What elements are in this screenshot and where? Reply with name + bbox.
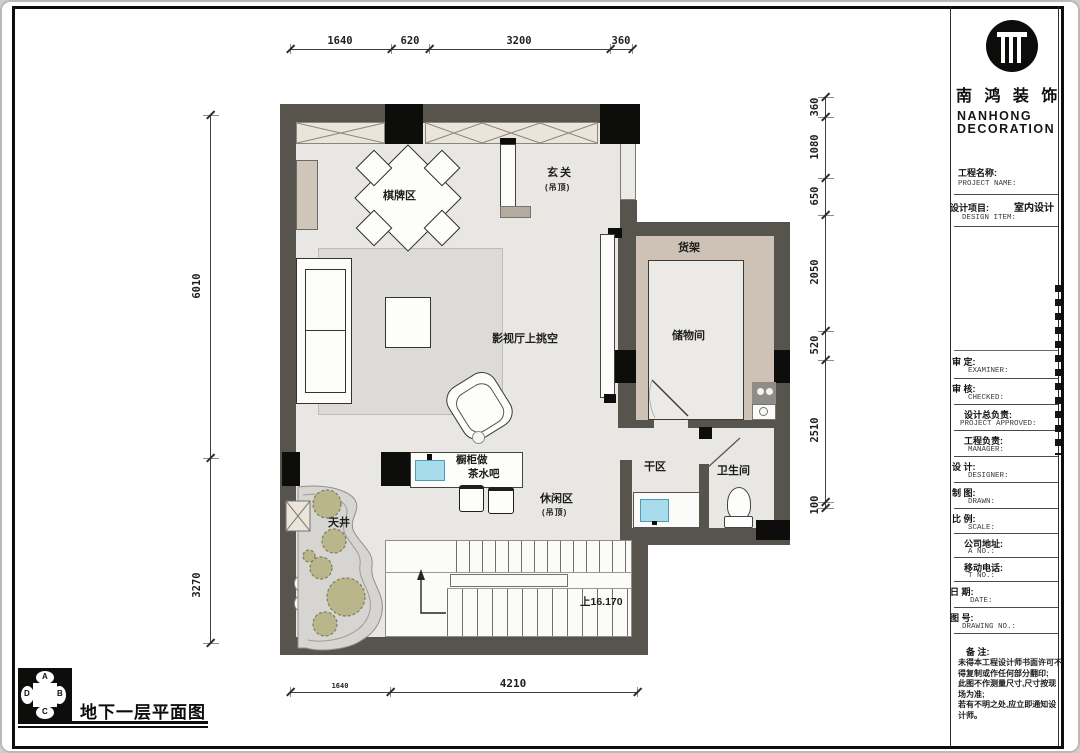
room-label-entry-sub: (吊顶) [545,184,570,192]
room-label-bar1: 橱柜做 [456,455,488,466]
column [385,104,423,144]
entry-screen [500,144,516,208]
dry-area-left-stub [620,460,632,530]
dim-right-1: 360 [809,87,821,127]
room-label-bar2: 茶水吧 [468,469,500,480]
dim-line-right [825,97,826,509]
coffee-table [385,297,431,348]
dim-top-4: 360 [601,35,641,47]
plan-title: 地下一层平面图 [80,698,206,723]
room-label-lightwell: 天井 [328,518,350,530]
brand-name-cn: 南 鸿 装 饰 [956,82,1061,106]
tb-row-drawingno-en: DRAWING NO.: [962,623,1016,631]
stepping-stone [294,594,313,613]
tb-row-date-en: DATE: [970,597,993,605]
wall-pier-left [282,452,300,486]
dim-left-2: 3270 [191,565,203,605]
toilet-tank [724,516,753,528]
column [381,452,411,486]
column [756,520,790,540]
dim-line-top [290,49,632,50]
hatch-cabinet [296,122,385,144]
clipped-vertical-text-marks [1055,285,1061,455]
compass-c: C [42,707,48,716]
dim-right-7: 100 [809,485,821,525]
stair-east-wall [630,543,648,643]
faucet-icon [427,454,432,460]
tb-item-value: 室内设计 [1014,199,1054,214]
dim-top-1: 1640 [316,35,364,47]
dim-bottom-2: 4210 [483,677,543,690]
stair-rail [450,574,568,587]
tb-item-en: DESIGN ITEM: [962,214,1016,222]
brand-logo-icon [986,20,1038,72]
tb-remark-cn: 备 注: [966,645,990,658]
dim-bottom-1: 1640 [320,682,360,690]
title-underline2 [18,726,208,728]
tb-row-phone-en: T NO.: [968,572,995,580]
stepping-stone [294,574,313,593]
stair-treads-upper [456,541,632,572]
tb-project-cn: 工程名称: [958,166,997,179]
storage-top-wall [628,222,790,236]
tb-row-drawn-en: DRAWN: [968,498,995,506]
side-cabinet [296,160,318,230]
bar-stool [488,487,514,514]
tea-bar-sink [415,460,445,481]
compass-a: A [42,672,48,681]
entry-screen-return [500,206,531,218]
room-label-shelf: 货架 [678,243,700,255]
compass-d: D [24,689,30,698]
entry-east-window [620,142,636,200]
vanity-sink [640,499,669,522]
bar-stool [459,485,484,512]
orientation-key: A B C D [18,668,72,722]
column [600,104,640,144]
tb-project-en: PROJECT NAME: [958,180,1017,188]
dim-line-left [210,115,211,643]
dim-left-1: 6010 [191,266,203,306]
tb-row-approved-en: PROJECT APPROVED: [960,420,1037,428]
drawing-sheet: 棋牌区 玄关 (吊顶) 货架 储物间 影视厅上挑空 干区 卫生间 休闲区 (吊顶… [0,0,1080,753]
tb-row-checked-en: CHECKED: [968,394,1004,402]
room-label-storage: 储物间 [672,331,705,343]
storage-fixture-dot [759,407,768,416]
stair-mid-line [385,572,632,573]
tb-row-designer-en: DESIGNER: [968,472,1009,480]
tb-row-manager-en: MANAGER: [968,446,1004,454]
tb-item-cn: 设计项目: [950,201,989,214]
faucet-icon [652,521,657,525]
dim-right-6: 2510 [809,410,821,450]
tb-row-scale-en: SCALE: [968,524,995,532]
tb-row-address-en: A NO.: [968,548,995,556]
dim-right-3: 650 [809,176,821,216]
room-label-void: 影视厅上挑空 [492,334,558,346]
room-label-entry: 玄关 [547,168,573,180]
wall-bottom [280,637,648,655]
dim-line-bottom [290,692,637,693]
storage-appliance-dot [757,388,764,395]
bath-partition [699,464,709,530]
room-label-chess: 棋牌区 [383,191,416,203]
media-wall-screen [600,234,615,398]
brand-name-en2: DECORATION [957,123,1055,136]
dim-top-2: 620 [391,35,429,47]
tb-row-examiner-en: EXAMINER: [968,367,1009,375]
dim-right-2: 1080 [809,127,821,167]
tb-remark-notes: 未得本工程设计师书面许可不 得复制或作任何部分翻印; 此图不作测量尺寸,尺寸按现… [958,658,1058,721]
room-label-leisure-sub: (吊顶) [542,509,567,517]
room-label-leisure: 休闲区 [540,494,573,506]
title-underline [18,721,208,724]
room-label-dry: 干区 [644,462,666,474]
dim-top-3: 3200 [496,35,542,47]
bath-partition-cap [699,427,712,439]
sofa-cushions [305,269,346,393]
wall-top [280,104,640,123]
floor-drain [472,431,485,444]
sofa-divider [305,330,346,331]
room-label-bath: 卫生间 [717,466,750,478]
storage-appliance-dot [766,388,773,395]
dim-right-5: 520 [809,325,821,365]
stair-up-note: 上16.170 [580,597,623,608]
dim-right-4: 2050 [809,252,821,292]
floor-plan: 棋牌区 玄关 (吊顶) 货架 储物间 影视厅上挑空 干区 卫生间 休闲区 (吊顶… [0,0,950,753]
screen-cap [604,394,616,403]
compass-b: B [57,689,63,698]
lounge-chair-seat [452,379,509,438]
wall-left [280,104,296,655]
